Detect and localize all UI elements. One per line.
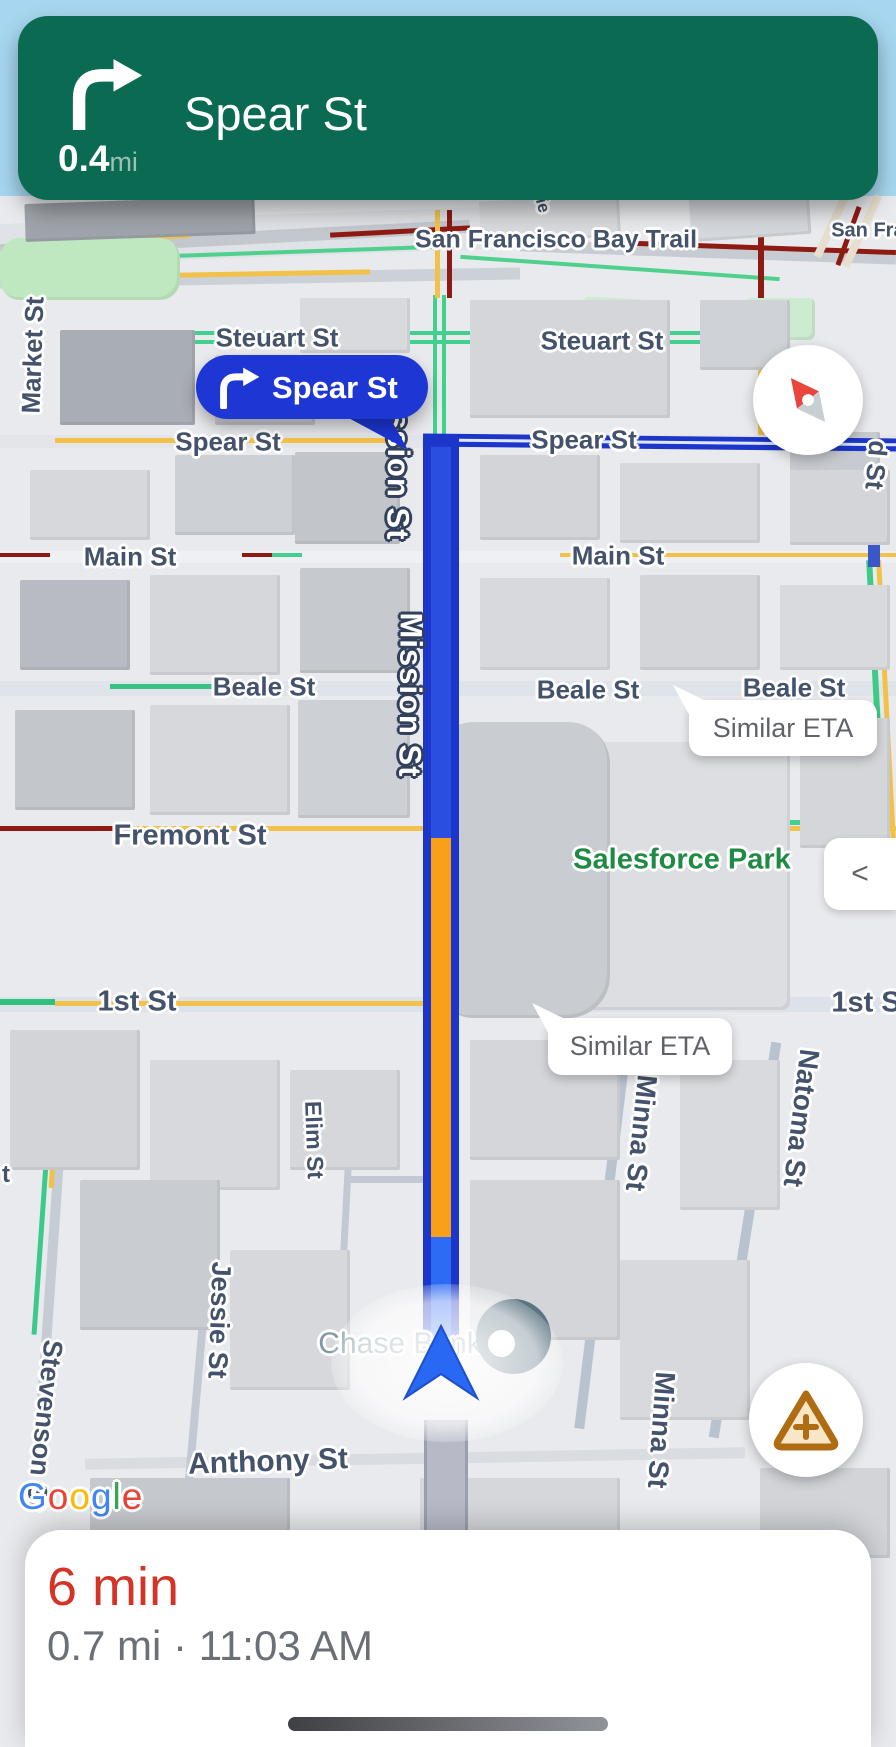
building-block [20,580,130,670]
road-segment [433,295,437,438]
building-block [15,710,135,810]
street-label-main-right: Main St [572,541,664,572]
building-block [470,300,670,418]
collapse-panel-button[interactable]: < [824,838,896,910]
home-indicator[interactable] [288,1717,608,1731]
building-block [150,1060,280,1190]
building-block [10,1030,140,1170]
street-label-first-left: 1st St [98,986,177,1019]
street-label-main-left: Main St [84,542,176,573]
google-logo-letter: o [48,1476,70,1517]
building-block [480,578,610,670]
street-label-first-right: 1st S [831,987,896,1020]
navigation-banner[interactable]: Spear St 0.4mi [18,16,878,200]
building-block [30,470,150,540]
road-segment [350,1176,430,1183]
building-block [80,1180,220,1330]
poi-label-salesforce-park: Salesforce Park [573,844,791,877]
route-segment-blue [431,442,451,838]
street-label-anthony: Anthony St [187,1442,348,1482]
street-label-steuart-right: Steuart St [541,326,664,357]
eta-bubble-beale[interactable]: Similar ETA [689,700,877,756]
compass-needle-icon [766,358,850,442]
building-block [150,575,280,675]
google-logo-letter: o [69,1476,91,1517]
street-label-beale-mid: Beale St [537,675,640,706]
building-block [680,1060,780,1210]
google-logo: Google [18,1476,143,1518]
street-label-spear-left: Spear St [175,427,281,458]
road-segment [442,295,446,438]
google-logo-letter: e [122,1476,144,1517]
street-label-mission-lower: Mission St [391,612,428,777]
street-label-jessie: Jessie St [201,1261,236,1379]
street-label-steuart-left: Steuart St [216,323,339,354]
street-label-natoma: Natoma St [777,1047,826,1188]
street-label-spear-right: Spear St [531,425,637,456]
compass-button[interactable] [753,345,863,455]
banner-distance-value: 0.4 [58,138,109,179]
turn-right-icon [60,58,146,130]
street-label-elim: Elim St [299,1101,329,1180]
trip-details: 0.7 mi · 11:03 AM [47,1622,373,1670]
report-incident-button[interactable] [749,1363,863,1477]
turn-callout[interactable]: Spear St [196,355,428,419]
navigation-screen: San Francisco Bay Trail San Fran Pie Mar… [0,0,896,1747]
street-label-beale-left: Beale St [213,672,316,703]
google-logo-letter: G [18,1476,48,1517]
building-block [60,330,195,425]
building-block [780,585,890,670]
road-segment [0,553,50,557]
building-block [150,705,290,815]
banner-distance-unit: mi [109,147,138,177]
building-block [620,1260,750,1420]
road-segment [0,999,55,1005]
hazard-plus-icon [773,1389,839,1451]
turn-callout-label: Spear St [272,370,398,406]
street-label-bay-trail: San Francisco Bay Trail [415,226,697,255]
street-label-market: Market St [15,296,50,414]
road-segment [242,553,272,557]
trip-eta: 6 min [47,1556,179,1618]
building-block [620,463,760,543]
collapse-chevron: < [851,857,869,891]
building-block [640,575,760,670]
eta-bubble-first-text: Similar ETA [570,1031,711,1062]
street-label-san-fran-partial: San Fran [831,220,896,243]
location-puck-icon[interactable] [399,1320,483,1408]
turn-right-icon [212,365,264,409]
street-label-stevenson-partial: t [2,1161,10,1189]
road-segment [0,826,130,831]
street-label-howard-partial: d St [858,439,893,491]
building-block [0,238,180,300]
google-logo-letter: g [91,1476,113,1517]
building-block [175,455,295,535]
street-label-fremont: Fremont St [113,820,266,853]
banner-instruction: Spear St [184,86,367,141]
street-label-beale-right: Beale St [743,673,846,704]
google-logo-letter: l [113,1476,122,1517]
building-block [480,455,600,540]
road-segment [272,553,302,557]
street-label-minna-lower: Minna St [641,1371,681,1490]
eta-bubble-first[interactable]: Similar ETA [548,1018,732,1075]
route-segment-orange-traffic [431,838,451,1237]
eta-bubble-beale-text: Similar ETA [713,713,854,744]
banner-distance: 0.4mi [58,138,138,180]
building-block [24,196,255,242]
